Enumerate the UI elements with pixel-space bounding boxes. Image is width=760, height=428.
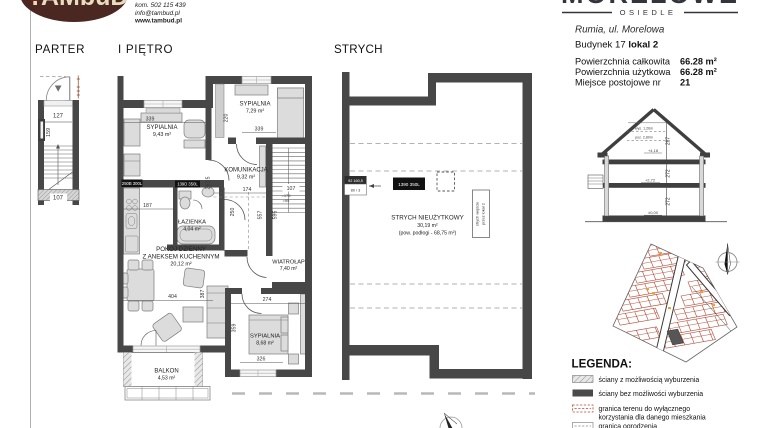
svg-text:granica ogrodzenia: granica ogrodzenia (599, 424, 658, 428)
svg-text:8,68 m²: 8,68 m² (256, 341, 274, 347)
svg-text:Powierzchnia całkowita: Powierzchnia całkowita (575, 57, 671, 67)
svg-text:9,43 m²: 9,43 m² (153, 132, 171, 138)
svg-text:66.28 m²: 66.28 m² (680, 67, 717, 77)
svg-text:339: 339 (146, 117, 155, 123)
svg-text:LEGENDA:: LEGENDA: (572, 358, 633, 371)
svg-text:20,12 m²: 20,12 m² (170, 262, 191, 268)
svg-text:Powierzchnia użytkowa: Powierzchnia użytkowa (575, 67, 671, 77)
svg-text:+4,18: +4,18 (648, 148, 659, 153)
svg-text:I PIĘTRO: I PIĘTRO (118, 43, 173, 56)
svg-text:274: 274 (263, 297, 272, 303)
svg-text:107: 107 (287, 186, 296, 192)
svg-text:107: 107 (53, 196, 64, 202)
svg-text:SYPIALNIA: SYPIALNIA (239, 102, 270, 108)
svg-text:PARTER: PARTER (35, 43, 85, 56)
svg-text:SYPIALNIA: SYPIALNIA (250, 334, 280, 340)
svg-text:287: 287 (666, 137, 672, 146)
svg-text:POKÓJ DZIENNY: POKÓJ DZIENNY (156, 246, 206, 253)
svg-text:KOMUNIKACJA: KOMUNIKACJA (224, 168, 267, 174)
svg-text:359: 359 (232, 324, 238, 333)
svg-text:7,40 m²: 7,40 m² (280, 266, 298, 272)
svg-text:=95: =95 (283, 198, 291, 203)
svg-text:BALKON: BALKON (154, 369, 178, 375)
svg-text:127: 127 (53, 114, 64, 120)
svg-text:kom. 502 115 439: kom. 502 115 439 (135, 2, 186, 9)
svg-text:(pow. podłogi - 68,75 m²): (pow. podłogi - 68,75 m²) (399, 231, 457, 237)
svg-text:557: 557 (258, 211, 264, 220)
svg-text:poz. 2,80m: poz. 2,80m (635, 136, 653, 140)
svg-text:STRYCH NIEUŻYTKOWY: STRYCH NIEUŻYTKOWY (391, 215, 463, 222)
svg-text:7,29 m²: 7,29 m² (246, 109, 264, 115)
svg-text:www.tambud.pl: www.tambud.pl (134, 18, 182, 25)
svg-text:+2,72: +2,72 (645, 177, 656, 182)
svg-text:272: 272 (666, 169, 672, 178)
svg-text:404: 404 (168, 294, 177, 300)
svg-text:Z ANEKSEM KUCHENNYM: Z ANEKSEM KUCHENNYM (142, 254, 219, 261)
svg-text:przez lokal 2: przez lokal 2 (481, 203, 486, 225)
svg-text:80 / 3: 80 / 3 (351, 189, 361, 193)
svg-text:Rumia, ul. Morelowa: Rumia, ul. Morelowa (575, 25, 665, 36)
svg-text:STRYCH: STRYCH (334, 43, 383, 56)
svg-text:ściany bez możliwości wyburzen: ściany bez możliwości wyburzenia (599, 391, 704, 398)
svg-text:OSIEDLE: OSIEDLE (620, 8, 677, 17)
svg-text:267,5: 267,5 (206, 176, 212, 189)
svg-text:250B 300L: 250B 300L (122, 181, 143, 186)
svg-text:TAMbuD: TAMbuD (28, 0, 129, 11)
svg-text:4,04 m²: 4,04 m² (183, 227, 201, 233)
svg-text:±0,00: ±0,00 (648, 210, 659, 215)
svg-text:strych wejście: strych wejście (475, 202, 480, 226)
svg-text:wys. 1,26m: wys. 1,26m (635, 127, 653, 131)
svg-text:339: 339 (255, 127, 264, 133)
svg-text:Budynek 17 lokal 2: Budynek 17 lokal 2 (575, 40, 658, 51)
svg-text:30,19 m²: 30,19 m² (417, 223, 438, 229)
svg-text:174: 174 (243, 187, 252, 193)
svg-text:66.28 m²: 66.28 m² (680, 57, 717, 67)
svg-text:21: 21 (680, 78, 690, 88)
svg-text:387: 387 (200, 290, 206, 299)
svg-text:SYPIALNIA: SYPIALNIA (146, 125, 177, 131)
svg-text:1390 350L: 1390 350L (398, 182, 420, 187)
svg-text:9,32 m²: 9,32 m² (237, 175, 255, 181)
svg-text:250: 250 (230, 208, 236, 217)
svg-text:220: 220 (224, 114, 230, 123)
svg-text:4,53 m²: 4,53 m² (158, 376, 176, 382)
svg-text:159: 159 (46, 128, 52, 137)
svg-text:WIATROŁAP: WIATROŁAP (272, 260, 305, 266)
svg-text:info@tambud.pl: info@tambud.pl (135, 10, 180, 17)
svg-text:korzystania dla danego mieszka: korzystania dla danego mieszkania (599, 415, 706, 422)
svg-text:ściany z możliwością wyburzeni: ściany z możliwością wyburzenia (599, 377, 700, 384)
svg-text:187: 187 (143, 203, 152, 209)
svg-text:139D 350L: 139D 350L (177, 182, 198, 187)
svg-text:272: 272 (666, 197, 672, 206)
svg-text:Miejsce postojowe nr: Miejsce postojowe nr (575, 78, 661, 88)
svg-text:ŁAZIENKA: ŁAZIENKA (178, 220, 206, 226)
svg-text:92 160,5: 92 160,5 (348, 179, 363, 183)
svg-text:granica terenu do wyłącznego: granica terenu do wyłącznego (599, 406, 691, 413)
svg-text:595: 595 (273, 211, 279, 220)
svg-text:326: 326 (257, 357, 266, 363)
